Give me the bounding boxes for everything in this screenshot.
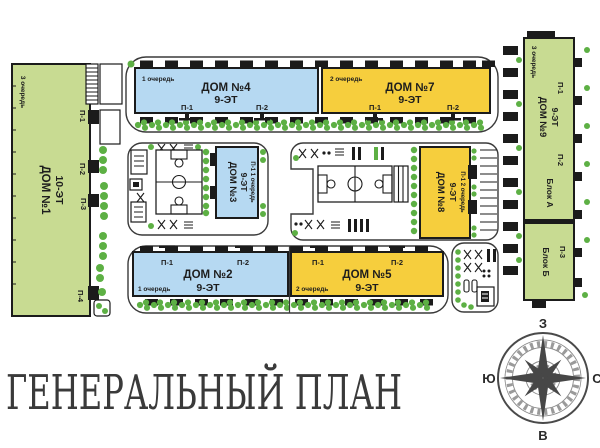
courtyard-block-left: ДОМ №3 9-ЭТ П-1 1 очередь: [128, 143, 268, 235]
dom3-floors-label: 9-ЭТ: [239, 173, 249, 193]
dom4-name-label: ДОМ №4: [201, 82, 251, 94]
hedge-icon: [374, 147, 378, 160]
dom8-name-label: ДОМ №8: [435, 172, 446, 213]
dom9-entrance-3-label: П-3: [558, 246, 567, 258]
info-stand-icon: [131, 150, 147, 174]
dom4-floors-label: 9-ЭТ: [214, 94, 238, 106]
dom1-floors-label: 10-ЭТ: [53, 175, 65, 205]
green-plot: [94, 300, 110, 316]
dom9-entrance-1-label: П-1: [556, 82, 565, 94]
dom2-floors-label: 9-ЭТ: [196, 282, 220, 294]
dom9-floors-label: 9-ЭТ: [550, 108, 560, 128]
dom1-entrance-1-label: П-1: [78, 110, 87, 122]
dom7-name-label: ДОМ №7: [385, 82, 434, 94]
dom9-block-a-label: Блок А: [545, 178, 555, 207]
dom8-floors-label: 9-ЭТ: [448, 183, 458, 203]
basketball-court: [318, 166, 392, 202]
building-dom7: 2 очередь ДОМ №7 9-ЭТ П-1 П-2: [322, 68, 490, 121]
compass-rose: З С Ю В: [482, 316, 600, 443]
dom4-entrance-1-label: П-1: [181, 103, 193, 112]
dom7-entrance-2-label: П-2: [447, 103, 459, 112]
dom5-entrance-1-label: П-1: [312, 258, 324, 267]
trees: [582, 47, 590, 298]
dom5-entrance-2-label: П-2: [391, 258, 403, 267]
compass-south-label: Ю: [482, 371, 495, 386]
compass-star: [500, 335, 586, 421]
dom4-phase-label: 1 очередь: [142, 76, 174, 83]
utility-box-icon: [477, 287, 494, 306]
dom7-floors-label: 9-ЭТ: [398, 94, 422, 106]
dom5-floors-label: 9-ЭТ: [355, 282, 379, 294]
dom1-phase-label: 3 очередь: [19, 76, 26, 108]
dom1-annexes: [86, 64, 122, 144]
dom1-entrance-2-label: П-2: [78, 163, 87, 175]
dom3-name-label: ДОМ №3: [227, 162, 238, 203]
building-dom4: 1 очередь ДОМ №4 9-ЭТ П-1 П-2: [135, 68, 318, 121]
dom7-entrance-1-label: П-1: [369, 103, 381, 112]
dom9-block-b-label: Блок Б: [541, 247, 551, 276]
dom1-entrance-4-label: П-4: [76, 290, 85, 303]
dom1-name-label: ДОМ №1: [39, 165, 51, 215]
dom3-phase-label: П-1 1 очередь: [249, 161, 255, 202]
dom2-name-label: ДОМ №2: [183, 269, 232, 281]
building-dom1: ДОМ №1 10-ЭТ 3 очередь П-1 П-2 П-3 П-4: [12, 64, 122, 316]
compass-east-label: В: [538, 428, 547, 443]
building-dom2: П-1 П-2 ДОМ №2 9-ЭТ 1 очередь: [133, 246, 288, 297]
playground-block: [452, 243, 498, 312]
dom5-name-label: ДОМ №5: [342, 269, 392, 281]
dom7-phase-label: 2 очередь: [330, 76, 362, 83]
dom2-entrance-2-label: П-2: [237, 258, 249, 267]
basketball-court: [156, 150, 202, 214]
building-dom9: 3 очередь П-1 ДОМ №9 9-ЭТ П-2 Блок А Бло…: [503, 31, 590, 308]
info-stand-icon: [131, 202, 146, 222]
compass-west-label: З: [539, 316, 547, 331]
building-dom8: ДОМ №8 9-ЭТ П-1 2 очередь: [420, 147, 477, 238]
dom9-phase-label: 3 очередь: [530, 46, 537, 78]
dom9-name-label: ДОМ №9: [537, 97, 548, 138]
dom2-phase-label: 1 очередь: [138, 286, 170, 293]
site-plan: ДОМ №1 10-ЭТ 3 очередь П-1 П-2 П-3 П-4 1…: [0, 0, 600, 448]
dom4-entrance-2-label: П-2: [256, 103, 268, 112]
building-dom3: ДОМ №3 9-ЭТ П-1 1 очередь: [210, 147, 258, 218]
compass-north-label: С: [592, 371, 600, 386]
dom2-entrance-1-label: П-1: [161, 258, 173, 267]
bottom-band: П-1 П-2 ДОМ №2 9-ЭТ 1 очередь П-1 П-2 ДО…: [128, 246, 448, 314]
utility-box-icon: [130, 179, 142, 190]
ramp-icon: [394, 166, 408, 202]
block-divider: [524, 219, 574, 224]
dom5-phase-label: 2 очередь: [296, 286, 328, 293]
dom1-entrance-3-label: П-3: [79, 198, 88, 210]
dom9-entrance-2-label: П-2: [556, 154, 565, 166]
parking-row: [503, 46, 518, 275]
dom8-phase-label: П-1 2 очередь: [459, 171, 465, 212]
page-title: ГЕНЕРАЛЬНЫЙ ПЛАН: [6, 362, 402, 421]
building-dom5: П-1 П-2 ДОМ №5 9-ЭТ 2 очередь: [291, 246, 443, 297]
courtyard-block-right: ДОМ №8 9-ЭТ П-1 2 очередь: [291, 143, 498, 240]
top-band: 1 очередь ДОМ №4 9-ЭТ П-1 П-2 2 очередь …: [126, 57, 498, 132]
